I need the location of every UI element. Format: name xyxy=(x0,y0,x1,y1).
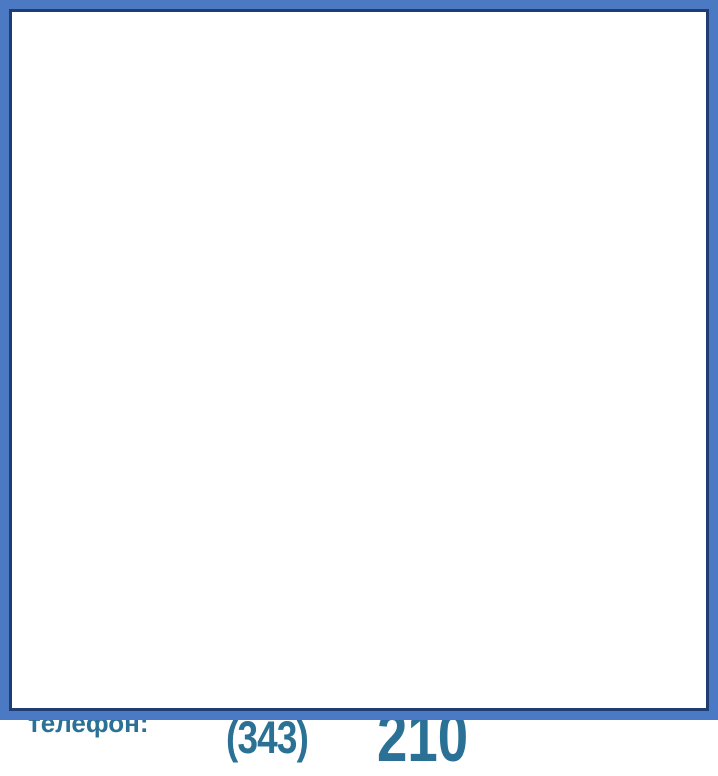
dim-label: 150* xyxy=(315,279,323,295)
dim-label: 1400* xyxy=(178,189,186,210)
dim-label: 1400* xyxy=(282,562,303,570)
dim-label: 2612* xyxy=(165,226,173,248)
dim-label: 800* xyxy=(178,332,186,348)
dim-label: 840* xyxy=(474,387,490,395)
callout-label: 3 xyxy=(319,406,324,416)
email-label: Наш e-mail: xyxy=(28,597,146,620)
logo-acronym: УЗСК xyxy=(24,71,182,113)
dim-label: 500* xyxy=(501,242,517,250)
weld-note-flag: 25 xyxy=(520,446,527,452)
dim-label: 700* xyxy=(244,552,260,560)
dim-label: 250* xyxy=(461,242,478,250)
nozzle-label: Ду 40 xyxy=(402,251,424,259)
nozzle-label: Ду 40 xyxy=(235,85,257,93)
dim-label: 100* xyxy=(188,261,196,277)
email-line: Наш e-mail: zavod-uzsk@mail.ru xyxy=(28,597,354,621)
nozzle-label: Ду 15 xyxy=(555,249,577,257)
email-value[interactable]: zavod-uzsk@mail.ru xyxy=(152,597,355,620)
dim-label: 425* xyxy=(184,510,192,527)
factory-icon xyxy=(24,13,182,71)
phone-number: 200-2-210 xyxy=(377,648,623,767)
callout-label: 1 xyxy=(387,95,392,105)
phone-label: Наш телефон: xyxy=(28,677,208,739)
dim-label: 940* xyxy=(473,398,489,406)
callout-label: 4 xyxy=(413,405,419,415)
nozzle-label: Ду 50 xyxy=(357,85,379,93)
callout-label: 1 xyxy=(328,82,333,92)
front-view: Ду 40 1 Ду 50 1 2 А 400* 1400* 2612* 300… xyxy=(165,82,400,400)
dim-label: 850* xyxy=(170,485,178,501)
dim-label: 300* xyxy=(220,542,236,550)
side-view: 250* 500* Ду 40 Ду 15 840* 940* xyxy=(402,96,577,410)
weld-note: ГОСТ 5264-80-Н1-Δ3 xyxy=(438,454,500,460)
phone-prefix: +7 (343) xyxy=(226,660,356,764)
detail-circle xyxy=(313,105,337,129)
company-logo: УЗСК УРАЛЬСКИЙ ЗАВОД СТАЛЬНЫХ КОНСТРУКЦИ… xyxy=(24,13,182,123)
dim-label: 1100* xyxy=(389,188,397,209)
dim-label: 100* xyxy=(213,419,229,427)
dim-label: 300* xyxy=(188,238,196,254)
dim-label: 300* xyxy=(348,542,364,550)
phone-line: Наш телефон: +7 (343) 200-2-210 xyxy=(28,648,692,767)
view-marker: А xyxy=(236,284,243,294)
callout-label: 2 xyxy=(385,306,391,316)
plan-view: 100* 3 4 ГОСТ 5264-80-Н1-Δ3 25 850* 425*… xyxy=(170,405,533,574)
dim-label: 1390* xyxy=(286,388,307,396)
page-title: Чертеж бака для топлива Б-1,4 xyxy=(178,38,706,71)
logo-subtitle: УРАЛЬСКИЙ ЗАВОД СТАЛЬНЫХ КОНСТРУКЦИЙ xyxy=(24,116,182,123)
